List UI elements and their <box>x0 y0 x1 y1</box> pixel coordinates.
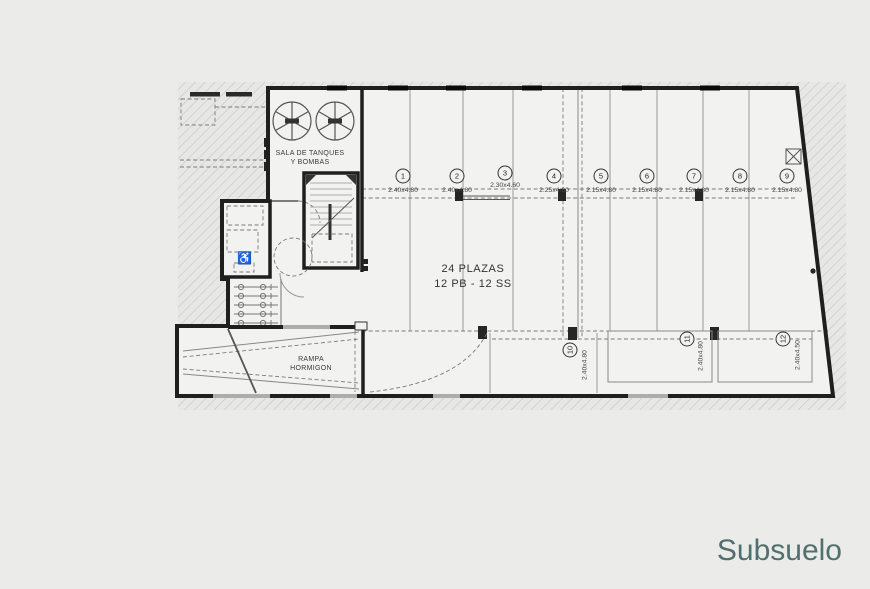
svg-text:9: 9 <box>785 172 789 181</box>
building-footprint <box>177 88 833 396</box>
svg-text:2.40x4.80: 2.40x4.80 <box>697 341 704 371</box>
svg-text:11: 11 <box>683 335 692 343</box>
svg-text:2.40x4.80: 2.40x4.80 <box>388 187 418 194</box>
floor-plan: SALA DE TANQUES Y BOMBAS ♿ <box>0 0 870 589</box>
svg-text:2.15x4.80: 2.15x4.80 <box>679 187 709 194</box>
svg-text:8: 8 <box>738 172 742 181</box>
svg-text:6: 6 <box>645 172 649 181</box>
capacity-line2: 12 PB - 12 SS <box>434 278 512 290</box>
svg-text:2.40x4.50: 2.40x4.50 <box>794 340 801 370</box>
svg-text:2.40x4.80: 2.40x4.80 <box>581 350 588 380</box>
svg-text:4: 4 <box>552 172 556 181</box>
svg-text:1: 1 <box>401 172 405 181</box>
capacity-line1: 24 PLAZAS <box>442 263 505 275</box>
svg-text:2: 2 <box>455 172 459 181</box>
ramp-label-line1: RAMPA <box>298 356 324 363</box>
floor-title: Subsuelo <box>717 534 842 567</box>
svg-text:10: 10 <box>566 346 575 354</box>
svg-text:3: 3 <box>503 169 507 178</box>
svg-text:2.15x4.80: 2.15x4.80 <box>772 187 802 194</box>
x-box-marker <box>786 149 801 164</box>
svg-text:5: 5 <box>599 172 603 181</box>
tank-room-label-line1: SALA DE TANQUES <box>276 150 345 157</box>
svg-text:2.30x4.60: 2.30x4.60 <box>490 182 520 189</box>
svg-text:2.25x4.80: 2.25x4.80 <box>539 187 569 194</box>
svg-text:2.15x4.80: 2.15x4.80 <box>725 187 755 194</box>
svg-text:2.15x4.80: 2.15x4.80 <box>632 187 662 194</box>
svg-text:7: 7 <box>692 172 696 181</box>
svg-text:2.40x4.80: 2.40x4.80 <box>442 187 472 194</box>
svg-text:12: 12 <box>779 335 788 343</box>
wheelchair-icon: ♿ <box>237 251 252 265</box>
svg-text:2.15x4.80: 2.15x4.80 <box>586 187 616 194</box>
tank-room-label-line2: Y BOMBAS <box>291 159 330 166</box>
ramp-label-line2: HORMIGON <box>290 365 332 372</box>
